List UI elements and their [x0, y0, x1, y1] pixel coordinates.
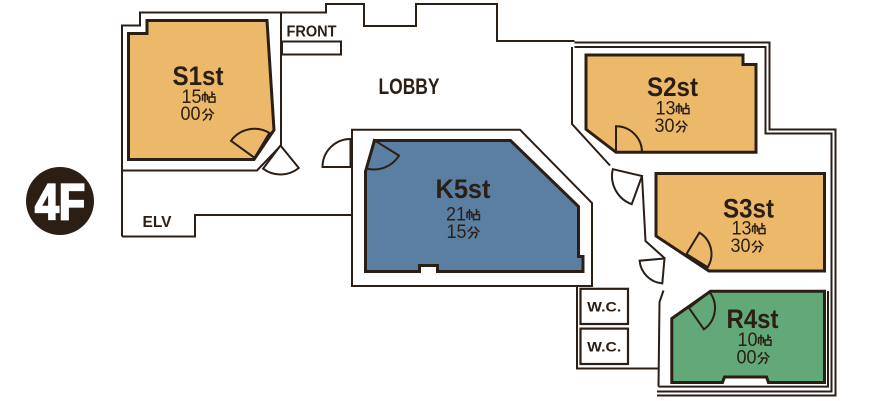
svg-text:W.C.: W.C. — [587, 339, 621, 355]
svg-text:S2st: S2st — [647, 72, 698, 102]
svg-text:15: 15 — [447, 222, 467, 243]
svg-text:00: 00 — [181, 104, 201, 125]
svg-text:00: 00 — [737, 348, 757, 369]
svg-text:ELV: ELV — [143, 214, 172, 231]
svg-text:30: 30 — [655, 116, 675, 137]
svg-text:W.C.: W.C. — [587, 299, 621, 315]
svg-text:LOBBY: LOBBY — [379, 74, 440, 99]
svg-text:FRONT: FRONT — [287, 24, 337, 41]
svg-text:4F: 4F — [35, 174, 85, 230]
svg-text:K5st: K5st — [436, 174, 491, 204]
svg-text:30: 30 — [731, 236, 751, 257]
